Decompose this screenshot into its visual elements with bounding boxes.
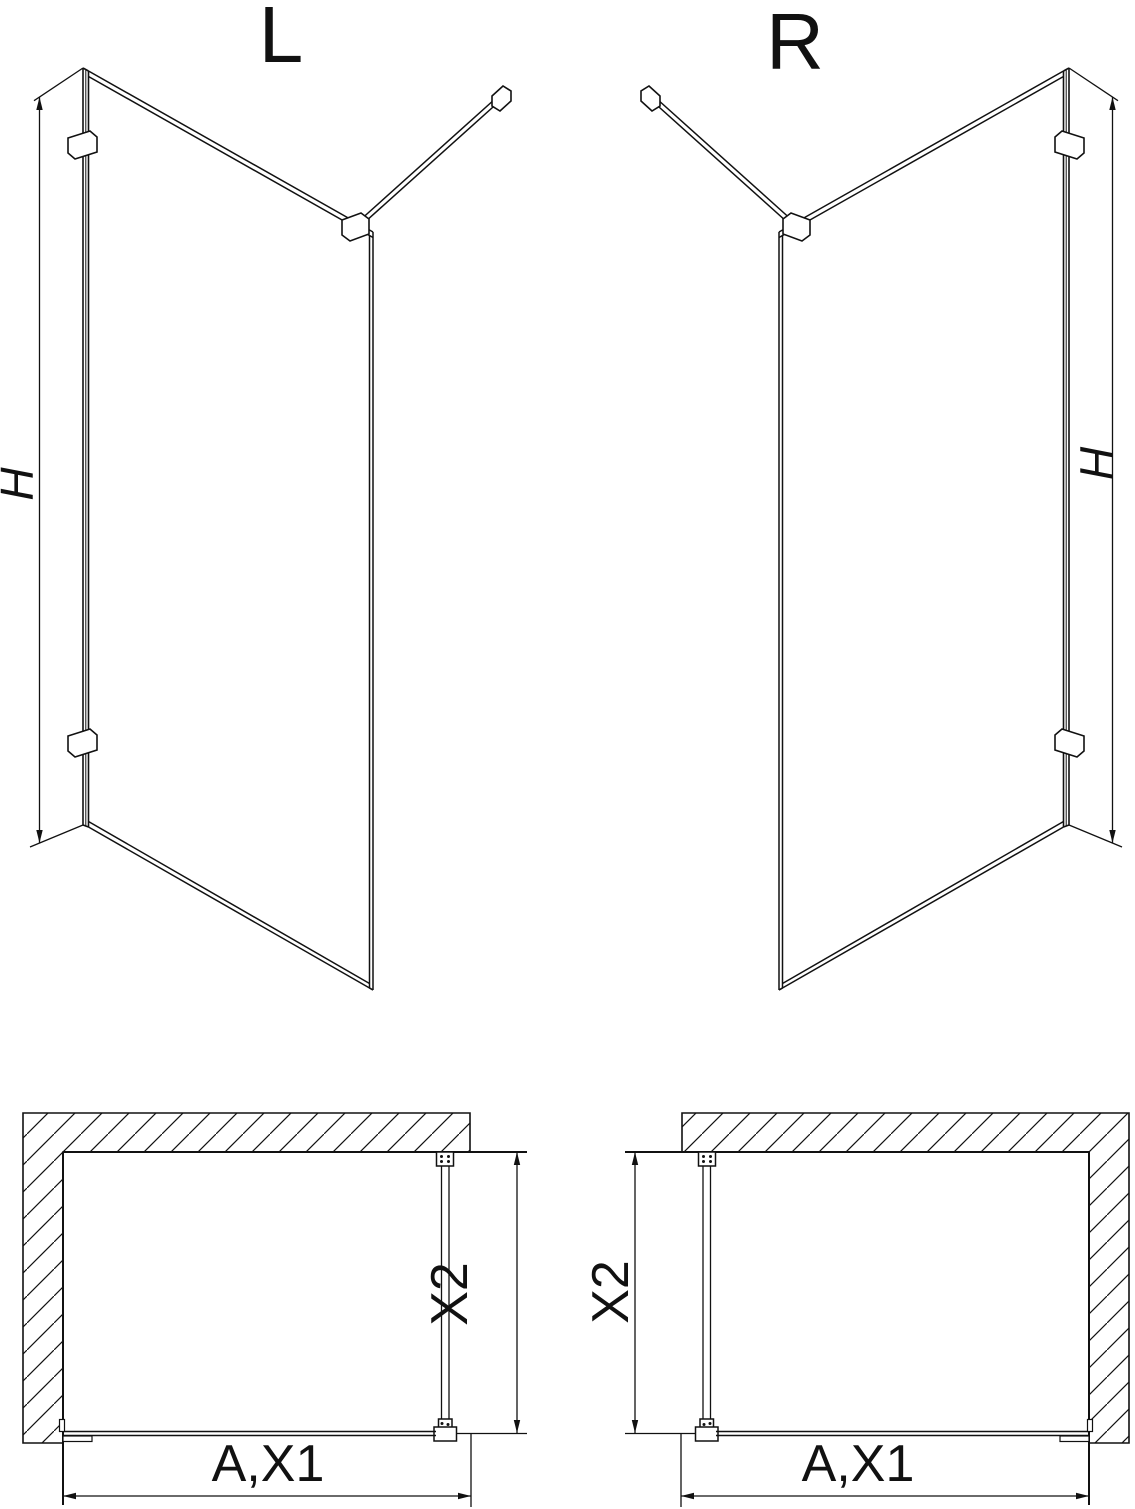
label-variant-left: L <box>259 0 304 79</box>
width-dimension-label-plan-right: A,X1 <box>802 1435 915 1493</box>
depth-dimension-label-plan-left: X2 <box>421 1262 479 1326</box>
plan-right-wall-hatch <box>682 1113 1129 1443</box>
label-variant-right: R <box>766 0 824 86</box>
drawing-page: L R H H X2 A,X1 X2 A,X1 <box>0 0 1135 1509</box>
depth-dimension-label-plan-right: X2 <box>582 1260 640 1324</box>
height-dimension-label-left: H <box>0 467 43 501</box>
width-dimension-label-plan-left: A,X1 <box>212 1435 325 1493</box>
height-dimension-label-right: H <box>1070 445 1122 479</box>
perspective-right-drawing <box>641 68 1122 990</box>
technical-drawing: L R H H X2 A,X1 X2 A,X1 <box>0 0 1135 1509</box>
perspective-left-drawing <box>30 68 511 990</box>
plan-left-wall-hatch <box>23 1113 470 1443</box>
